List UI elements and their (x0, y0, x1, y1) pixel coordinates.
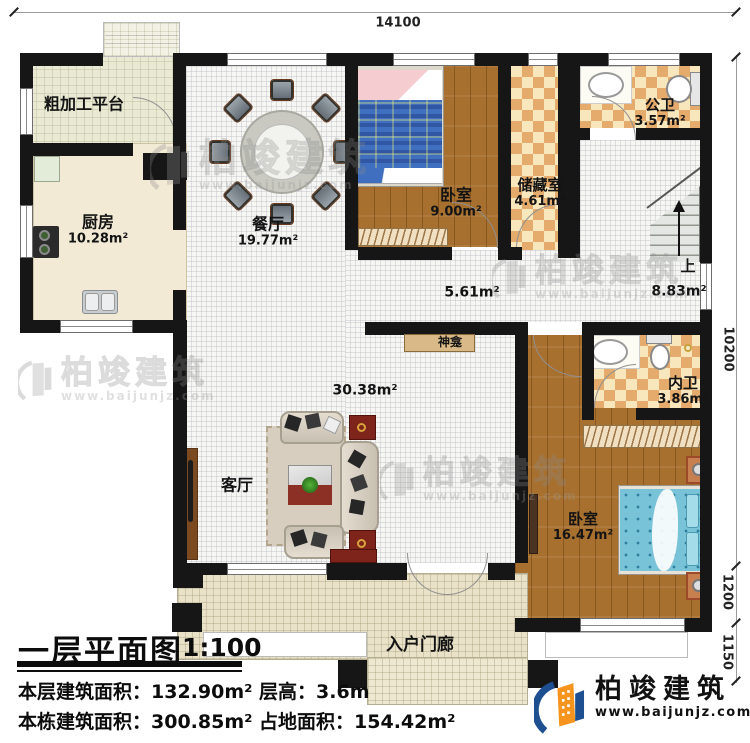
brand-logo: 柏竣建筑 www.baijunjz.com (534, 676, 750, 738)
public-bath-sink (588, 72, 624, 98)
wall (20, 143, 133, 156)
tv-screen (188, 460, 193, 522)
table-plant (302, 477, 318, 493)
label-stairs-up: 上 (680, 257, 695, 275)
sink-basin (85, 293, 99, 311)
window (20, 88, 33, 135)
wall (515, 322, 528, 563)
bed-top-sheet-fold (358, 168, 442, 184)
window (393, 53, 475, 66)
label-hall-area: 5.61m² (444, 285, 499, 302)
brand-name: 柏竣建筑 (595, 676, 750, 703)
label-dining: 餐厅19.77m² (238, 215, 298, 250)
wall (327, 53, 393, 66)
bedroom-tv-board (529, 494, 538, 554)
wall (558, 53, 580, 258)
stairs-arrow-head (673, 200, 685, 212)
bed-pillow (686, 494, 699, 528)
inner-bath-sink (592, 339, 628, 365)
window (227, 563, 327, 575)
wall (636, 408, 712, 420)
wall-pillar (173, 563, 203, 588)
dimension-top-value: 14100 (375, 16, 420, 31)
wall (345, 53, 358, 250)
area-info-line1: 本层建筑面积：132.90m² 层高：3.6m (18, 677, 370, 704)
label-public-bath: 公卫3.57m² (634, 96, 685, 130)
wall (173, 53, 186, 153)
dimension-right-bottom-value: 1150 (720, 634, 735, 670)
wall (488, 563, 515, 580)
label-inner-bath: 内卫3.86m² (657, 374, 708, 408)
brand-logo-icon (534, 676, 588, 738)
wall (358, 247, 452, 260)
sofa-pillow (349, 499, 365, 515)
wall (582, 322, 712, 335)
wall (498, 247, 522, 260)
bed-top-blanket (358, 70, 442, 102)
corner-cabinet (330, 549, 377, 563)
label-porch: 入户门廊 (386, 635, 454, 655)
side-table-ring (357, 423, 366, 432)
wall (173, 322, 187, 575)
wall (580, 128, 590, 140)
wall (143, 153, 187, 180)
area-info-line2: 本栋建筑面积：300.85m² 占地面积：154.42m² (18, 707, 456, 734)
wall (685, 618, 712, 632)
wall (327, 563, 407, 580)
plan-scale: 1:100 (182, 633, 262, 662)
back-step (545, 632, 688, 658)
bed-pillow (686, 532, 699, 566)
wall (20, 320, 60, 333)
dimension-line-top (13, 12, 737, 13)
wall (515, 618, 580, 632)
dimension-right-value: 10200 (721, 326, 736, 371)
label-stairs-area: 8.83m² (651, 284, 706, 301)
label-storage: 储藏室4.61m² (514, 176, 565, 210)
toilet-tank (646, 334, 672, 344)
window (20, 205, 33, 258)
title-underline (17, 661, 242, 667)
toilet-bowl (650, 344, 670, 370)
porch-step (367, 657, 528, 705)
label-platform: 粗加工平台 (44, 94, 124, 113)
stove-burner (39, 244, 50, 255)
label-bedroom-top: 卧室9.00m² (430, 186, 481, 221)
wall (582, 408, 594, 420)
bedroom-top-dresser (358, 228, 448, 246)
label-living-area: 30.38m² (332, 383, 397, 400)
fridge (34, 156, 60, 182)
label-bedroom-main: 卧室16.47m² (553, 510, 613, 544)
bed-top-mattress (358, 100, 442, 172)
dimension-right-mid-value: 1200 (720, 574, 735, 610)
brand-url: www.baijunjz.com (595, 703, 750, 723)
window (608, 53, 680, 66)
label-living: 客厅 (221, 475, 253, 494)
sink-basin (101, 293, 115, 311)
window (60, 320, 133, 333)
dining-chair (210, 141, 230, 163)
window (580, 618, 685, 632)
dining-table-top (254, 124, 310, 180)
wall (173, 180, 186, 230)
window (528, 53, 558, 66)
sofa-pillow (305, 413, 322, 430)
wardrobe (583, 425, 710, 448)
side-table-ring (357, 539, 366, 548)
label-shrine: 神龛 (438, 335, 462, 349)
stove-burner (39, 230, 50, 241)
label-kitchen: 厨房10.28m² (68, 213, 128, 248)
wall (636, 128, 712, 140)
floor-drain (684, 344, 692, 352)
stairs-arrow-shaft (678, 212, 680, 256)
dining-chair (271, 80, 293, 100)
platform-step-lines (105, 28, 178, 46)
wall (582, 335, 594, 408)
dimension-line-right (736, 55, 737, 683)
floor-plan-canvas: 粗加工平台 厨房10.28m² 餐厅19.77m² 卧室9.00m² 储藏室4.… (0, 0, 750, 743)
title-underline-thin (17, 670, 242, 672)
watermark-logo-icon (18, 356, 54, 404)
wall (498, 53, 511, 260)
window (227, 53, 327, 66)
